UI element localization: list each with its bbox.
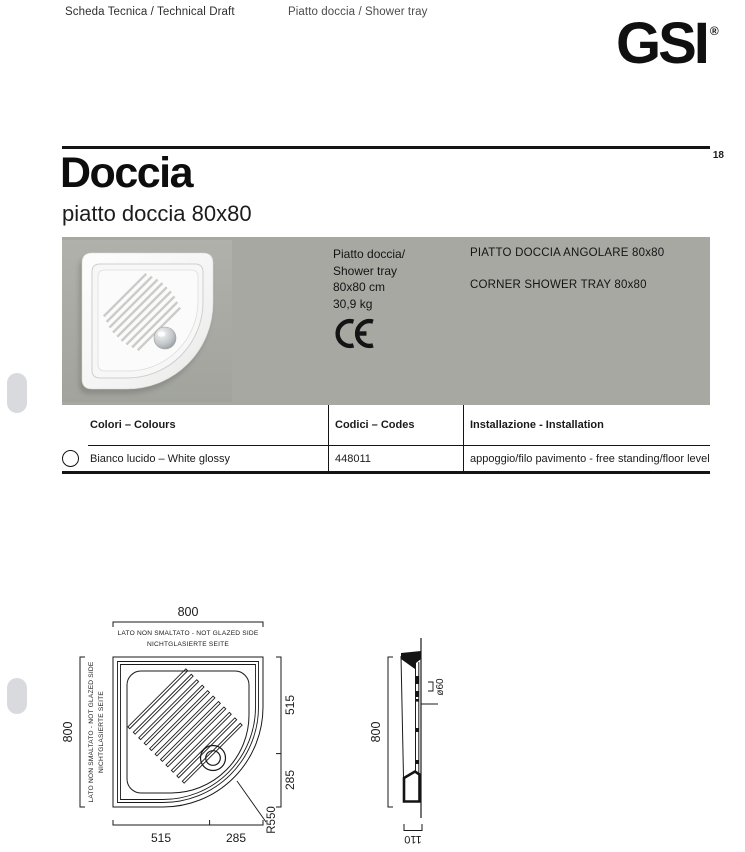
cell-installation: appoggio/filo pavimento - free standing/…: [470, 453, 710, 465]
col-header-installation: Installazione - Installation: [470, 419, 604, 431]
spec-table: Colori – Colours Codici – Codes Installa…: [62, 405, 710, 474]
gsi-logo: GSI®: [616, 0, 719, 75]
plan-left-dim: 800: [61, 722, 75, 743]
col-header-colors: Colori – Colours: [90, 419, 176, 431]
col-header-codes: Codici – Codes: [335, 419, 414, 431]
section-length-dim: 800: [369, 722, 383, 743]
binder-mark: [7, 678, 27, 714]
registered-mark: ®: [710, 24, 719, 38]
table-divider: [328, 405, 329, 471]
plan-right-dim-top: 515: [283, 695, 297, 715]
plan-right-dim-bottom: 285: [283, 770, 297, 790]
section-drain-dim: ø60: [435, 678, 446, 696]
table-header-rule: [88, 445, 710, 446]
plan-radius-label: R550: [266, 806, 278, 834]
spec-line: 80x80 cm: [333, 279, 405, 296]
plan-note-left-2: NICHTGLASIERTE SEITE: [98, 691, 105, 773]
product-panel: Piatto doccia/ Shower tray 80x80 cm 30,9…: [62, 237, 710, 405]
color-swatch-white: [62, 450, 79, 467]
spec-line: Piatto doccia/: [333, 246, 405, 263]
technical-drawings: 800 800 515 285 515 285 R550 800 110 ø60…: [60, 598, 500, 852]
table-bottom-rule: [62, 471, 710, 474]
product-name-it: PIATTO DOCCIA ANGOLARE 80x80: [470, 247, 664, 259]
ce-mark-icon: [332, 317, 374, 350]
spec-line: 30,9 kg: [333, 296, 405, 313]
product-spec: Piatto doccia/ Shower tray 80x80 cm 30,9…: [333, 246, 405, 312]
technical-sheet-page: Scheda Tecnica / Technical Draft Piatto …: [0, 0, 745, 852]
page-subtitle: piatto doccia 80x80: [62, 201, 252, 227]
spec-line: Shower tray: [333, 263, 405, 280]
plan-bottom-dim-right: 285: [226, 831, 246, 845]
drain-cap-photo: [154, 327, 176, 349]
page-number: 18: [700, 150, 724, 161]
binder-mark: [7, 373, 27, 413]
product-photo: [62, 240, 232, 402]
section-depth-dim: 110: [404, 833, 422, 845]
plan-note-top-2: NICHTGLASIERTE SEITE: [147, 641, 229, 648]
product-name-en: CORNER SHOWER TRAY 80x80: [470, 279, 647, 291]
doc-type-label: Scheda Tecnica / Technical Draft: [65, 6, 235, 18]
plan-note-left-1: LATO NON SMALTATO - NOT GLAZED SIDE: [88, 661, 95, 802]
cell-code: 448011: [335, 453, 371, 465]
anti-slip-pattern: [128, 669, 242, 783]
plan-bottom-dim-left: 515: [151, 831, 171, 845]
page-title: Doccia: [60, 149, 192, 198]
drain-plan: [201, 746, 226, 771]
table-divider: [463, 405, 464, 471]
gsi-logo-text: GSI: [616, 11, 707, 76]
product-type-label: Piatto doccia / Shower tray: [288, 6, 428, 18]
plan-note-top-1: LATO NON SMALTATO - NOT GLAZED SIDE: [118, 630, 259, 637]
plan-top-dim: 800: [178, 605, 199, 619]
cell-color: Bianco lucido – White glossy: [90, 453, 230, 465]
